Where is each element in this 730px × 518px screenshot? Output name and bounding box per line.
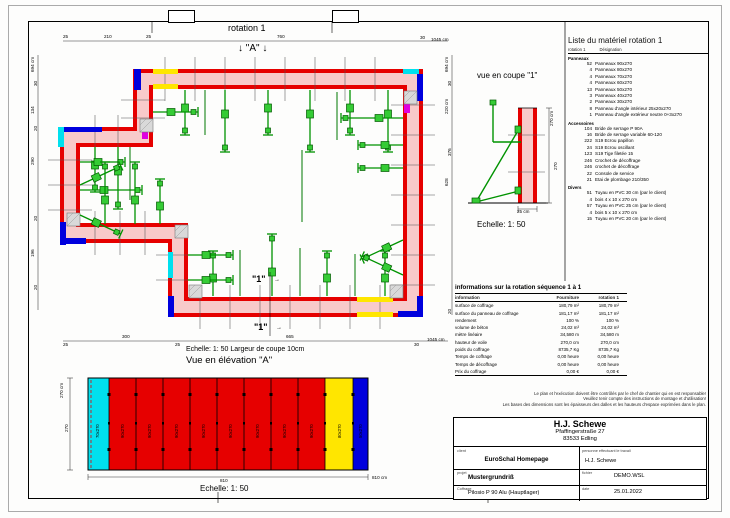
- rotation-info-table: informations sur la rotation séquence 1 …: [455, 284, 627, 376]
- dim-label: 30: [447, 81, 452, 86]
- panel-label: 90x270: [201, 424, 206, 438]
- dim-label: 694 cm: [30, 57, 35, 72]
- client-value: EuroSchal Homepage: [454, 456, 579, 463]
- section-marker-1-arrow-top: →: [274, 277, 280, 283]
- title-block-rule: [454, 469, 706, 470]
- info-table-row: Temps de décoffrage0,00 heure0,00 heure: [455, 361, 627, 368]
- panel-label: 90x270: [147, 424, 152, 438]
- company-block: H.J. Schewe Pfaffingerstraße 27 83533 Ed…: [454, 418, 706, 447]
- date-label: date: [582, 487, 589, 491]
- disclaimer: Le plan et l'exécution doivent être cont…: [450, 391, 706, 407]
- panel-label: 90x270: [228, 424, 233, 438]
- dim-label: 20: [33, 216, 38, 221]
- title-block-rule: [454, 485, 706, 486]
- material-list-col-designation: Désignation: [599, 47, 621, 52]
- drawing-sheet: rotation 1 ↓ "A" ↓ "1" → "1" → 25 210 25…: [0, 0, 730, 518]
- dim-label: 290: [30, 157, 35, 165]
- company-address: Pfaffingerstraße 27 83533 Edling: [454, 429, 706, 442]
- panel-label: 90x270: [255, 424, 260, 438]
- dim-label: 25 cm: [517, 209, 530, 214]
- client-label: client: [457, 449, 466, 453]
- dim-label: 694 cm: [444, 57, 449, 72]
- section-marker-1-top: "1": [252, 274, 266, 284]
- dim-label: 30: [420, 35, 425, 40]
- file-value: DEMO.WSL: [614, 473, 644, 479]
- dim-label: 30: [33, 81, 38, 86]
- title-block-divider: [579, 447, 580, 501]
- material-list-header: rotation 1 Désignation: [568, 47, 708, 54]
- dim-label: 220 cm: [444, 99, 449, 114]
- dim-label: 25: [146, 34, 151, 39]
- title-block: H.J. Schewe Pfaffingerstraße 27 83533 Ed…: [453, 417, 707, 500]
- info-table-header: information Fourniture rotation 1: [455, 294, 627, 302]
- dim-label: 270: [553, 162, 558, 170]
- dim-label: 20: [33, 126, 38, 131]
- project-value: Mustergrundriß: [468, 474, 514, 481]
- dim-label: 210: [104, 34, 112, 39]
- material-item: 1Panneau d'angle extérieur neutre 0+3x27…: [568, 112, 708, 118]
- info-table-row: hauteur de voile270,0 cm270,0 cm: [455, 339, 627, 346]
- dim-label: 20: [447, 309, 452, 314]
- dim-label: 300: [122, 334, 130, 339]
- panel-label: 90x270: [282, 424, 287, 438]
- coupe-scale: Echelle: 1: 50: [477, 220, 525, 229]
- info-table-title: informations sur la rotation séquence 1 …: [455, 284, 627, 294]
- info-table-row: mètre linéaire34,580 m34,580 m: [455, 331, 627, 338]
- section-marker-a: ↓ "A" ↓: [238, 43, 267, 54]
- file-label: fichier: [582, 471, 592, 475]
- dim-label: 20: [33, 285, 38, 290]
- rotation-title: rotation 1: [228, 23, 266, 33]
- dim-label: 376: [447, 148, 452, 156]
- project-label: projet: [457, 471, 467, 475]
- elevation-title: Vue en élévation "A": [186, 355, 272, 366]
- formwork-value: Pilosio P 90 Alu (Hauptlager): [468, 490, 539, 496]
- worker-value: H.J. Schewe: [585, 458, 616, 464]
- dim-label: 628: [444, 178, 449, 186]
- worker-label: personne effectuant le travail: [582, 449, 631, 453]
- dim-label: 134: [30, 106, 35, 114]
- coupe-view: [468, 100, 552, 212]
- dim-label: 270 cm: [549, 111, 554, 126]
- panel-label: 50x270: [358, 424, 363, 438]
- dim-label: 30: [414, 342, 419, 347]
- dim-label: 760: [277, 34, 285, 39]
- panel-label: 90x270: [309, 424, 314, 438]
- panel-label: 90x270: [174, 424, 179, 438]
- panel-label: 70x270: [95, 424, 100, 438]
- dim-label: 1045 cm: [431, 37, 449, 42]
- panel-label: 80x270: [337, 424, 342, 438]
- dim-label: 270 cm: [59, 383, 64, 398]
- info-table-row: volume de béton24,02 m³24,02 m³: [455, 324, 627, 331]
- elevation-view: [67, 378, 368, 480]
- plan-scale-note: Echelle: 1: 50 Largeur de coupe 10cm: [186, 346, 304, 353]
- plan-walls: [70, 79, 413, 307]
- props: [78, 90, 405, 296]
- dim-label: 270: [64, 424, 69, 432]
- material-list-title: Liste du matériel rotation 1: [568, 36, 708, 45]
- date-value: 25.01.2022: [614, 489, 642, 495]
- info-table-row: surface du panneau de coffrage181,17 m²1…: [455, 310, 627, 317]
- info-table-row: surface de coffrage180,79 m²180,79 m²: [455, 302, 627, 309]
- material-list-col-rotation: rotation 1: [568, 47, 585, 52]
- material-list: Liste du matériel rotation 1 rotation 1 …: [568, 36, 708, 222]
- dim-label: 25: [63, 34, 68, 39]
- material-item: 21Etai de plombage 210/350: [568, 177, 708, 183]
- section-marker-1-bottom: "1": [254, 322, 268, 332]
- material-item: 15Tuyau en PVC 20 cm (par le client): [568, 216, 708, 222]
- dim-label: 25: [63, 342, 68, 347]
- company-name: H.J. Schewe: [454, 419, 706, 429]
- dim-label: 810: [220, 478, 228, 483]
- dim-label: 196: [30, 249, 35, 257]
- info-table-row: Prix du coffrage0,00 €0,00 €: [455, 368, 627, 375]
- coupe-title: vue en coupe "1": [477, 71, 537, 80]
- dim-label: 25: [175, 342, 180, 347]
- dim-label: 810 cm: [372, 475, 387, 480]
- info-table-row: poids du coffrage8735,7 Kg8735,7 Kg: [455, 346, 627, 353]
- elevation-scale: Echelle: 1: 50: [200, 484, 248, 493]
- section-marker-1-arrow-bottom: →: [276, 325, 282, 331]
- panel-label: 90x270: [120, 424, 125, 438]
- info-table-row: Temps de coffrage0,00 heure0,00 heure: [455, 353, 627, 360]
- dim-label: 665: [286, 334, 294, 339]
- info-table-row: rendement100 %100 %: [455, 317, 627, 324]
- dim-label: 1045 cm: [427, 337, 445, 342]
- corner-blocks: [67, 91, 417, 298]
